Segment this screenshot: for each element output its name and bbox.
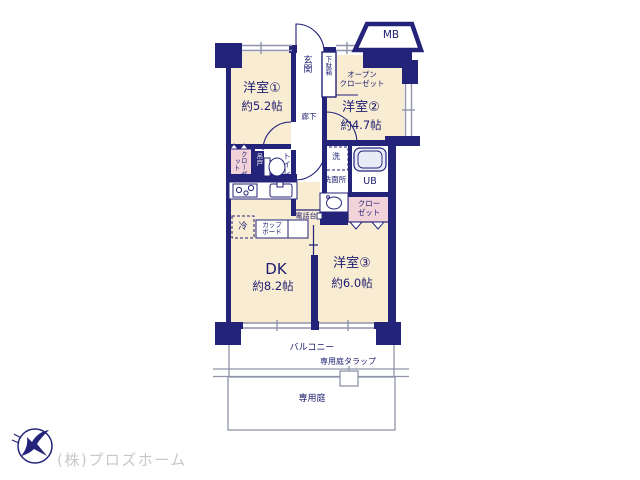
wall-dk-room3 [311,255,318,328]
window-bottom-room3 [319,323,374,328]
wall-washroom-bottom [320,212,348,225]
stove-icon [233,184,257,197]
wall-ub-bottom [348,192,396,197]
dk-size: 約8.2帖 [243,280,303,293]
sink-faucet [277,182,283,187]
meter-box-label: MB [376,29,406,41]
wall-room2-bottom [322,140,398,146]
floor-plan-drawing [0,0,640,480]
private-garden-label: 専用庭 [288,394,336,404]
closet-left-label: クローゼット [232,151,246,177]
sink-icon [270,182,292,197]
dk-name: DK [248,261,304,278]
room2-name: 洋室② [333,101,389,116]
floor-plan: 洋室① 約5.2帖 洋室② 約4.7帖 洋室③ 約6.0帖 DK 約8.2帖 玄… [0,0,640,480]
phone-stand-label: 電話台 [293,212,319,220]
hanging-door-label: 吊戸 [255,153,262,166]
vanity-tap [327,196,330,199]
entrance-door-arc [296,24,324,52]
vanity-icon [320,193,348,212]
pillar-top-right-2 [402,60,418,84]
window-top-room1 [242,46,292,51]
room3-size: 約6.0帖 [322,277,382,290]
washroom-label: 洗面所 [322,176,348,185]
pillar-bottom-left [215,322,241,345]
room3-name: 洋室③ [324,257,380,272]
unit-bath-label: UB [358,177,382,188]
company-name: (株)プロズホーム [57,449,187,470]
balcony-garden [213,345,409,430]
entrance-label: 玄関 [301,55,310,73]
pillar-top-left [215,43,242,68]
wall-bottom-stub-left [238,322,243,329]
room1-name: 洋室① [234,82,290,97]
closet-right-label: クロー ゼット [350,200,388,217]
cupboard-label: カップ ボード [258,222,286,237]
open-closet-label: オープン クローゼット [330,71,394,88]
garden-ladder-label: 専用庭タラップ [320,357,376,366]
wall-bottom-stub-right [374,322,379,329]
garden-ladder-hatch [340,371,358,386]
toilet-label: トイレ [282,152,290,176]
room1-size: 約5.2帖 [232,100,292,113]
hallway-label: 廊下 [296,113,322,122]
vanity-basin [327,197,342,209]
washer-label: 洗 [330,152,342,161]
wall-ub-left [348,146,352,196]
pillar-bottom-right [376,322,401,345]
company-logo [12,429,52,463]
bathtub-icon [354,148,386,171]
fridge-label: 冷 [237,222,249,232]
wall-right [388,146,396,326]
balcony-label: バルコニー [285,343,339,353]
room2-size: 約4.7帖 [331,119,391,132]
